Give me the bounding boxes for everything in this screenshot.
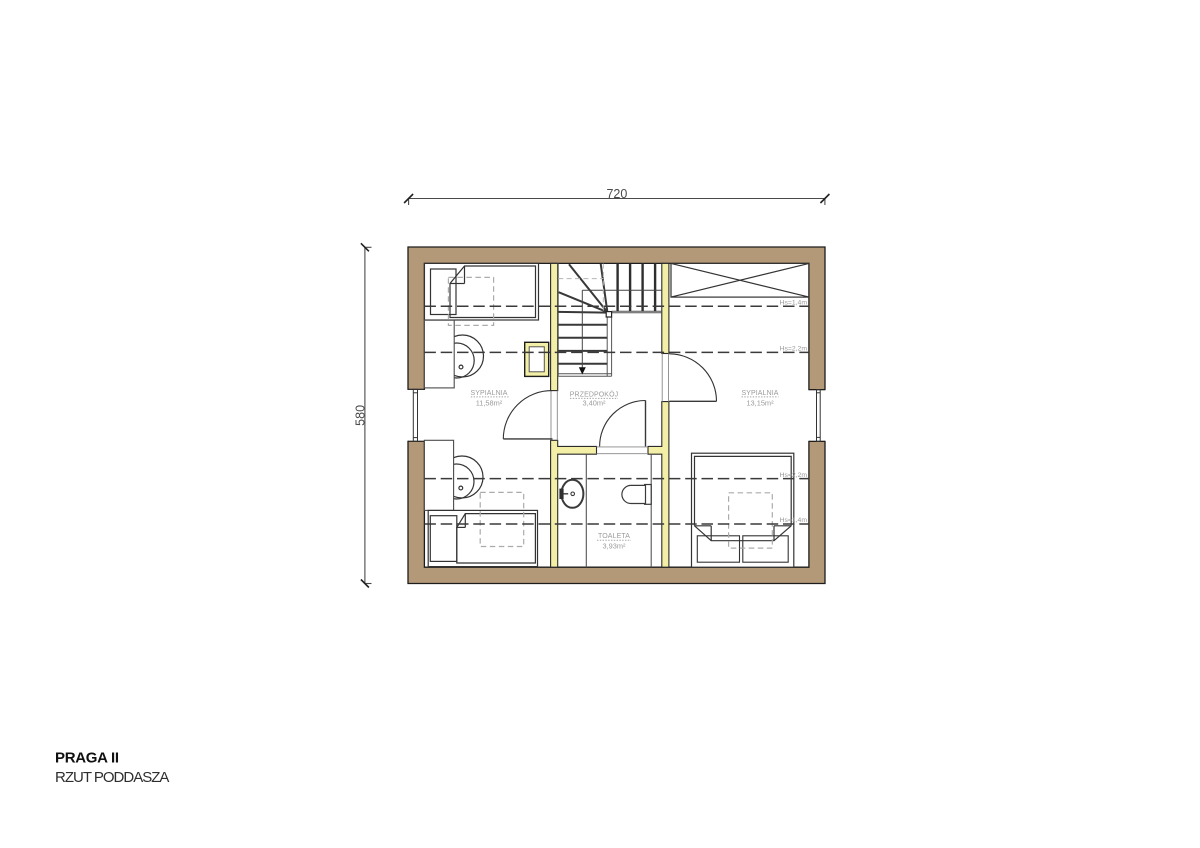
svg-text:3,93m²: 3,93m²	[602, 541, 626, 550]
svg-text:720: 720	[606, 187, 627, 201]
svg-text:Hs=2,2m: Hs=2,2m	[780, 472, 808, 479]
svg-text:580: 580	[353, 405, 367, 426]
svg-text:11,58m²: 11,58m²	[476, 398, 503, 407]
svg-text:SYPIALNIA: SYPIALNIA	[470, 390, 507, 397]
svg-text:TOALETA: TOALETA	[598, 533, 630, 540]
svg-text:Hs=1,4m: Hs=1,4m	[780, 517, 808, 524]
svg-text:SYPIALNIA: SYPIALNIA	[741, 390, 778, 397]
svg-text:RZUT PODDASZA: RZUT PODDASZA	[55, 769, 169, 786]
svg-text:PRAGA II: PRAGA II	[55, 750, 119, 767]
svg-text:Hs=1,4m: Hs=1,4m	[780, 300, 808, 307]
svg-text:PRZEDPOKÓJ: PRZEDPOKÓJ	[570, 390, 618, 399]
svg-text:13,15m²: 13,15m²	[746, 398, 774, 407]
svg-text:3,40m²: 3,40m²	[582, 399, 606, 408]
svg-text:Hs=2,2m: Hs=2,2m	[780, 346, 808, 353]
